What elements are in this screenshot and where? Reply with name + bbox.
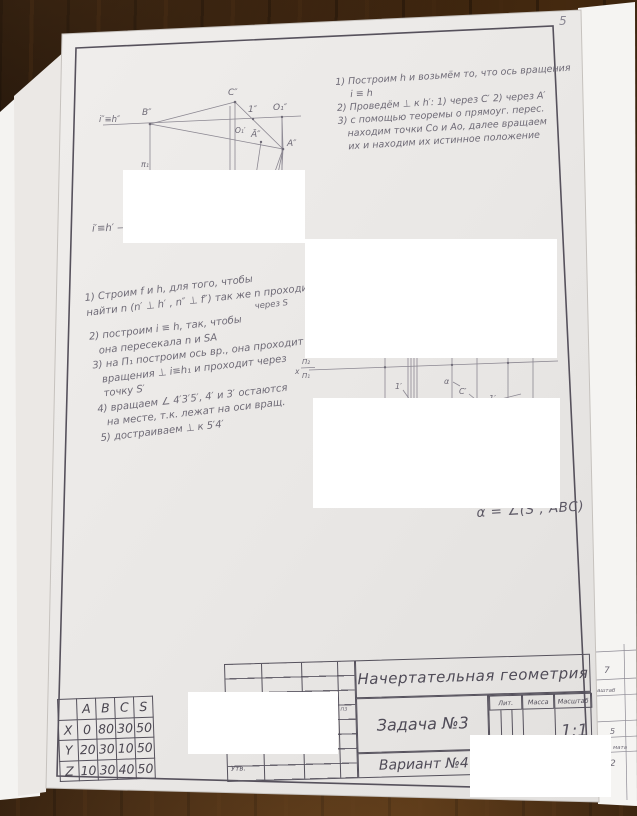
label-O12: O₁″ [273,103,288,113]
label-pi1: π₁ [141,160,149,169]
cell: 20 [78,739,98,760]
coordinates-table: A B C S X 0 80 30 50 Y 20 30 10 50 Z 1 [57,696,156,782]
cell: 10 [79,760,99,781]
table-corner [58,699,78,720]
page-number: 5 [559,14,567,28]
strip-frag-ashtab: аштаб [597,688,616,694]
label-axis-i2h2: i″≡h″ [99,115,121,125]
notes-top-right: 1) Построим h и возьмём то, что ось вращ… [335,60,595,153]
cell: 10 [116,738,136,759]
table-row: Z 10 30 40 50 [60,758,156,782]
cell: 50 [134,717,154,738]
label-Abar: Ā″ [250,129,261,140]
row-label: X [58,719,78,740]
strip-frag-mata: мата [613,745,628,751]
label-1prime-a: 1′ [395,382,402,391]
label-B2: B″ [142,108,152,118]
strip-frag-7: 7 [604,666,610,676]
label-C2: C″ [228,88,238,98]
cell: 50 [136,758,156,779]
cell: 0 [77,719,97,740]
col-header: S [133,696,153,717]
scale-label: Масштаб [554,693,592,709]
label-Cprime: C′ [459,387,467,396]
cell: 40 [117,758,137,779]
redaction-box-2 [305,239,557,358]
redaction-box-1 [123,170,305,243]
redaction-box-3 [313,398,560,508]
col-header: A [77,698,97,719]
cell: 80 [96,718,116,739]
redaction-box-5 [470,735,611,797]
cell: 30 [97,738,117,759]
subject-title: Начертательная геометрия [355,654,591,699]
col-header: C [114,697,134,718]
cell: 50 [135,737,155,758]
col-header: B [95,697,115,718]
fragment-pz: пз [340,706,347,713]
redaction-box-4 [188,692,338,754]
label-alpha: α [444,377,450,386]
mass-label: Масса [522,694,554,710]
row-label: Z [60,760,80,781]
label-A2: A″ [286,139,297,149]
label-O11: O₁′ [235,126,246,135]
label-12: 1″ [248,105,258,115]
approved-label: Утв. [231,764,246,772]
photo-scene: 7 аштаб 5 мата 2 5 [0,0,637,816]
lit-label: Лит. [489,695,522,711]
row-label: Y [59,740,79,761]
cell: 30 [115,717,135,738]
cell: 30 [98,759,118,780]
